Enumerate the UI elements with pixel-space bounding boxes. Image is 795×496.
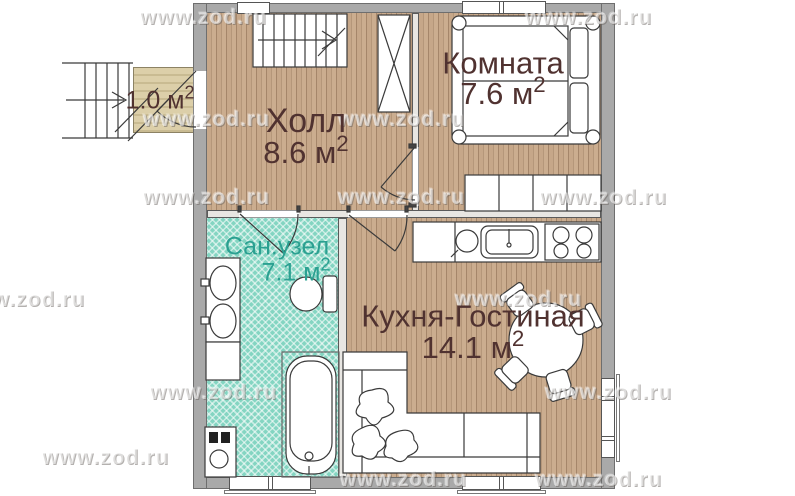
hall-wardrobe: [378, 15, 410, 112]
bathtub: [282, 352, 339, 477]
bedroom-area: 7.6 м2: [460, 75, 545, 109]
kitchen-living-area: 14.1 м2: [422, 329, 525, 363]
kitchen-living-label: Кухня-Гостиная: [361, 301, 584, 332]
dresser: [465, 175, 601, 211]
floor-plan: www.zod.ruwww.zod.ruwww.zod.ruwww.zod.ru…: [0, 0, 795, 496]
kitchen-door: [347, 206, 408, 251]
kitchen-sink: [481, 226, 538, 258]
washing-machine: [205, 427, 236, 477]
bedroom-door: [381, 144, 416, 207]
stove: [545, 224, 599, 260]
bathroom-cabinet: [206, 342, 240, 380]
furniture-layer: [0, 0, 795, 496]
hall-area: 8.6 м2: [263, 134, 348, 168]
porch-area: 1.0 м2: [126, 84, 195, 113]
bathroom-sinks: [201, 258, 240, 342]
hall-staircase: [253, 14, 347, 67]
bathroom-area: 7.1 м2: [262, 256, 331, 285]
